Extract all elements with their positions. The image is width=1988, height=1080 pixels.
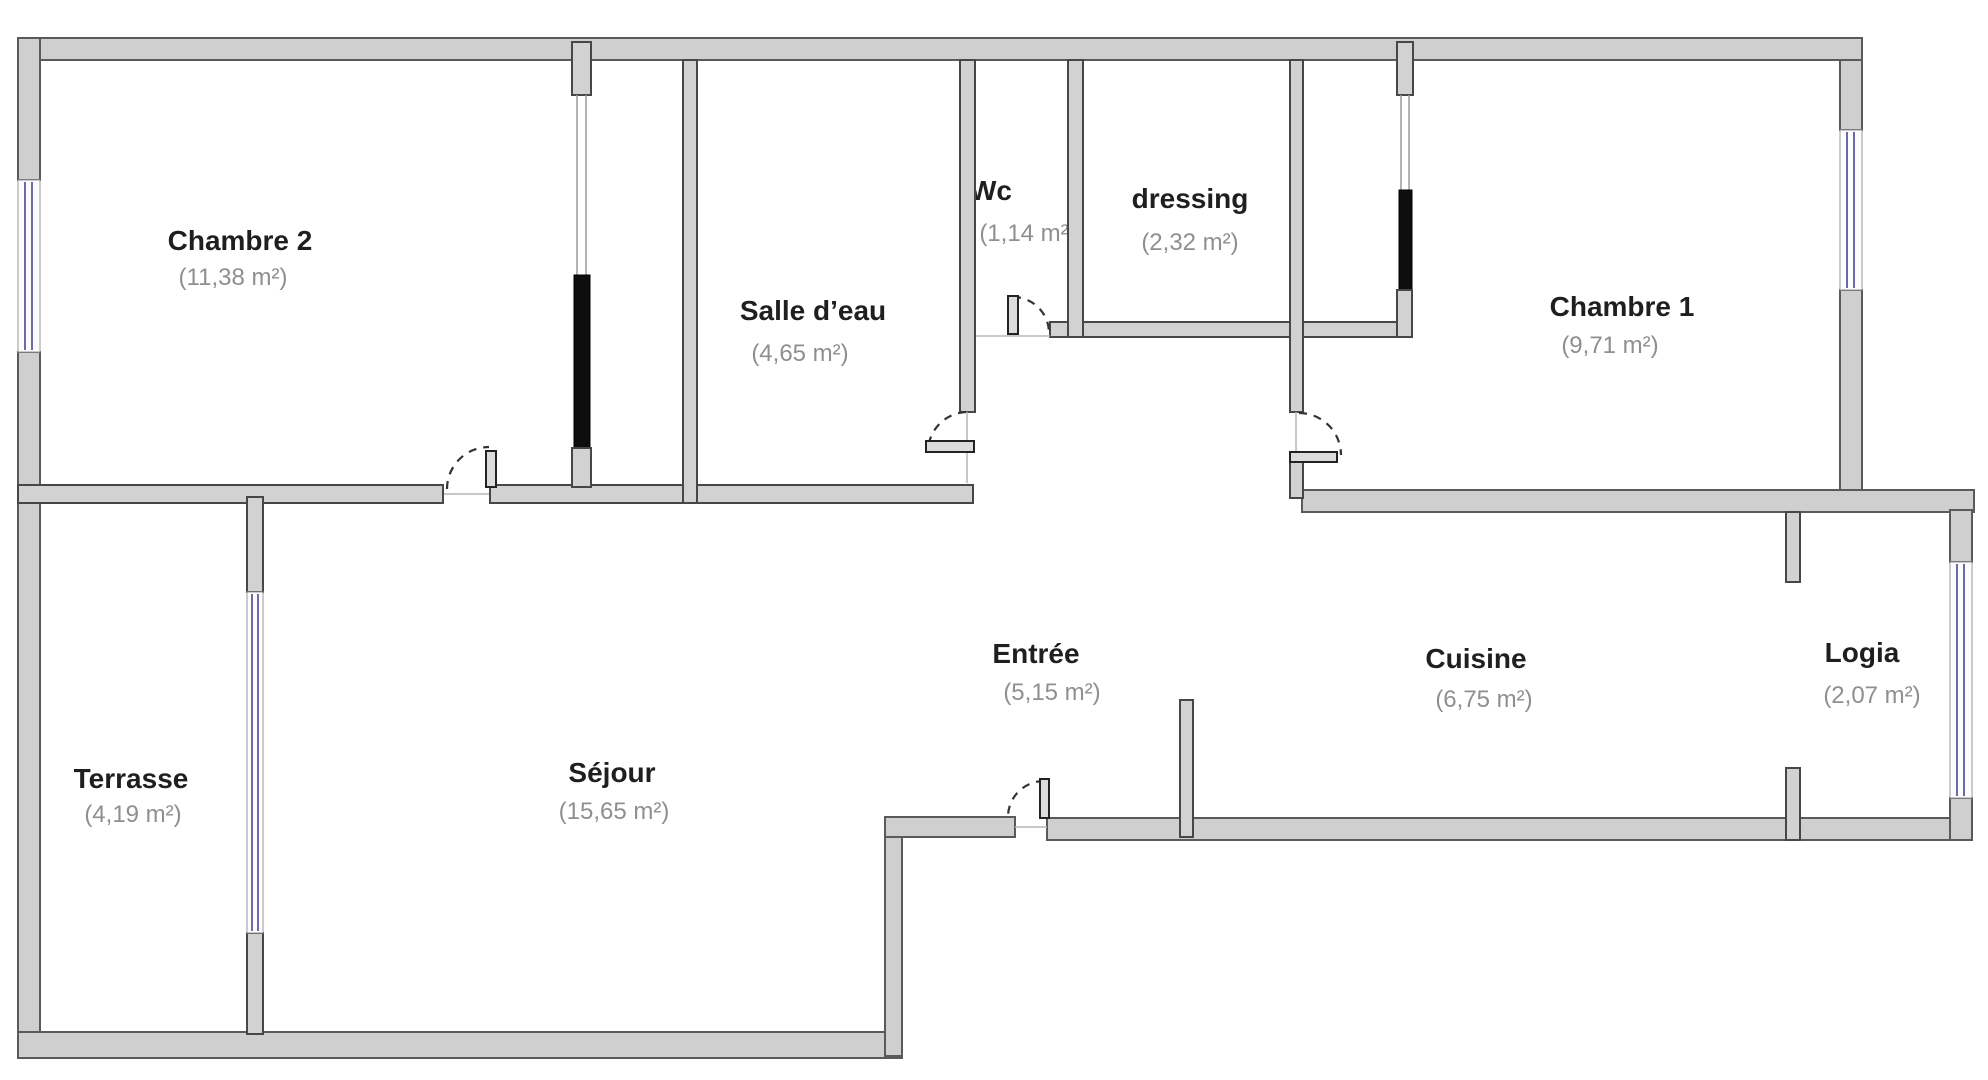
room-label-dressing: dressing <box>1132 183 1249 214</box>
wall-logia-right-upper <box>1950 510 1972 562</box>
room-area-entree: (5,15 m²) <box>1003 679 1100 706</box>
wall-under-chambre2 <box>18 485 443 503</box>
wall-terrasse-divider-upper <box>247 497 263 592</box>
room-area-chambre2: (11,38 m²) <box>179 264 288 291</box>
window-frame <box>18 180 40 352</box>
room-label-chambre1: Chambre 1 <box>1550 291 1695 322</box>
sliding-partition-stub-top <box>572 42 591 95</box>
floorplan-svg: Chambre 2 (11,38 m²) Salle d’eau (4,65 m… <box>0 0 1988 1080</box>
room-area-sejour: (15,65 m²) <box>559 798 670 825</box>
window-frame <box>1950 562 1972 798</box>
room-area-wc: (1,14 m²) <box>979 220 1076 247</box>
wall-dressing-right <box>1290 60 1303 412</box>
wall-left-lower <box>18 352 40 1058</box>
sliding-partition-chambre1 <box>1397 42 1413 337</box>
wall-sejour-right-step <box>885 817 902 1056</box>
room-area-salle-deau: (4,65 m²) <box>751 340 848 367</box>
wall-terrasse-divider-lower <box>247 933 263 1034</box>
wall-corridor-top <box>1050 322 1410 337</box>
door-leaf <box>486 451 496 487</box>
wall-cuisine-logia-stub-bottom <box>1786 768 1800 840</box>
room-label-sejour: Séjour <box>568 757 655 788</box>
sliding-partition-lower-wall <box>1397 290 1412 337</box>
room-label-terrasse: Terrasse <box>74 763 189 794</box>
window-logia-right <box>1950 562 1972 798</box>
room-area-terrasse: (4,19 m²) <box>84 801 181 828</box>
room-label-salle-deau: Salle d’eau <box>740 295 886 326</box>
room-area-dressing: (2,32 m²) <box>1141 229 1238 256</box>
room-label-logia: Logia <box>1825 637 1900 668</box>
room-area-chambre1: (9,71 m²) <box>1561 332 1658 359</box>
room-label-wc: Wc <box>970 175 1012 206</box>
window-chambre1-right <box>1840 130 1862 290</box>
wall-salledeau-left <box>683 60 697 503</box>
door-chambre1 <box>1290 412 1341 462</box>
sliding-door-panel <box>1399 190 1412 290</box>
wall-chambre1-right-lower <box>1840 290 1862 500</box>
sliding-partition-stub-top <box>1397 42 1413 95</box>
sliding-partition-chambre2 <box>572 42 591 487</box>
door-leaf <box>1008 296 1018 334</box>
door-leaf <box>1040 779 1049 818</box>
window-terrasse-divider <box>247 592 263 933</box>
window-frame <box>1840 130 1862 290</box>
room-area-logia: (2,07 m²) <box>1823 682 1920 709</box>
interior-walls <box>18 60 1800 1034</box>
wall-left-upper <box>18 38 40 180</box>
door-swing-arc <box>447 447 489 489</box>
wall-cuisine-top <box>1302 490 1974 512</box>
wall-chambre1-right-upper <box>1840 60 1862 130</box>
window-frame <box>247 592 263 933</box>
wall-wc-right <box>1068 60 1083 337</box>
wall-top <box>18 38 1862 60</box>
wall-salledeau-right <box>960 60 975 412</box>
wall-bottom-sejour <box>18 1032 902 1058</box>
room-label-chambre2: Chambre 2 <box>168 225 313 256</box>
sliding-partition-stub-bottom <box>572 448 591 487</box>
door-swing-arc <box>1008 781 1044 817</box>
room-label-cuisine: Cuisine <box>1425 643 1526 674</box>
room-label-entree: Entrée <box>992 638 1079 669</box>
door-leaf <box>926 441 974 452</box>
wall-entree-cuisine-stub <box>1180 700 1193 837</box>
wall-logia-right-lower <box>1950 798 1972 840</box>
wall-entree-bottom <box>885 817 1015 837</box>
wall-cuisine-logia-stub-top <box>1786 512 1800 582</box>
wall-under-salledeau <box>490 485 973 503</box>
room-area-cuisine: (6,75 m²) <box>1435 686 1532 713</box>
floorplan-canvas: Chambre 2 (11,38 m²) Salle d’eau (4,65 m… <box>0 0 1988 1080</box>
door-wc <box>976 296 1050 336</box>
door-swing-arc <box>1299 413 1341 455</box>
window-chambre2-left <box>18 180 40 352</box>
door-leaf <box>1290 452 1337 462</box>
wall-dressing-right-stub <box>1290 458 1303 498</box>
door-salle-deau <box>926 412 974 483</box>
door-chambre2 <box>444 447 496 494</box>
sliding-door-panel <box>574 275 590 448</box>
